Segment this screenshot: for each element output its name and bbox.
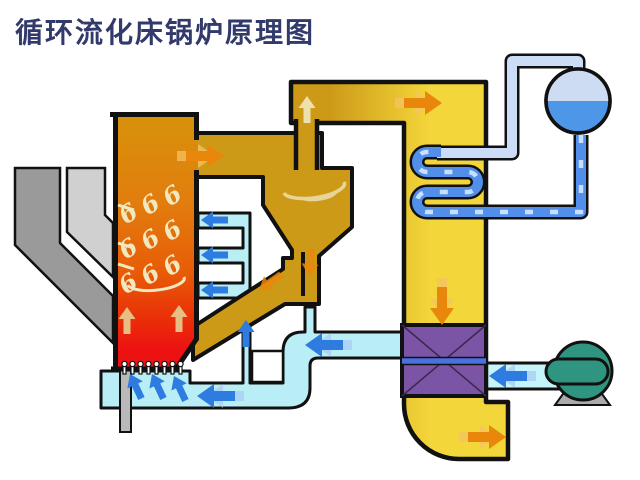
boiler-diagram-page: 循环流化床锅炉原理图 <box>0 0 640 480</box>
air-fan <box>546 342 612 405</box>
steam-drum <box>546 69 610 133</box>
fan-volute <box>546 359 608 384</box>
air-preheater <box>402 325 486 396</box>
drum-steam-half <box>546 69 610 101</box>
boiler-diagram: 循环流化床锅炉原理图 <box>0 0 640 480</box>
preheater-air-strip <box>402 358 486 365</box>
diagram-title: 循环流化床锅炉原理图 <box>15 16 315 49</box>
duct-structure-gap <box>252 351 283 382</box>
ash-drain-pipe <box>120 366 131 432</box>
vortex-finder-tube <box>296 119 317 170</box>
